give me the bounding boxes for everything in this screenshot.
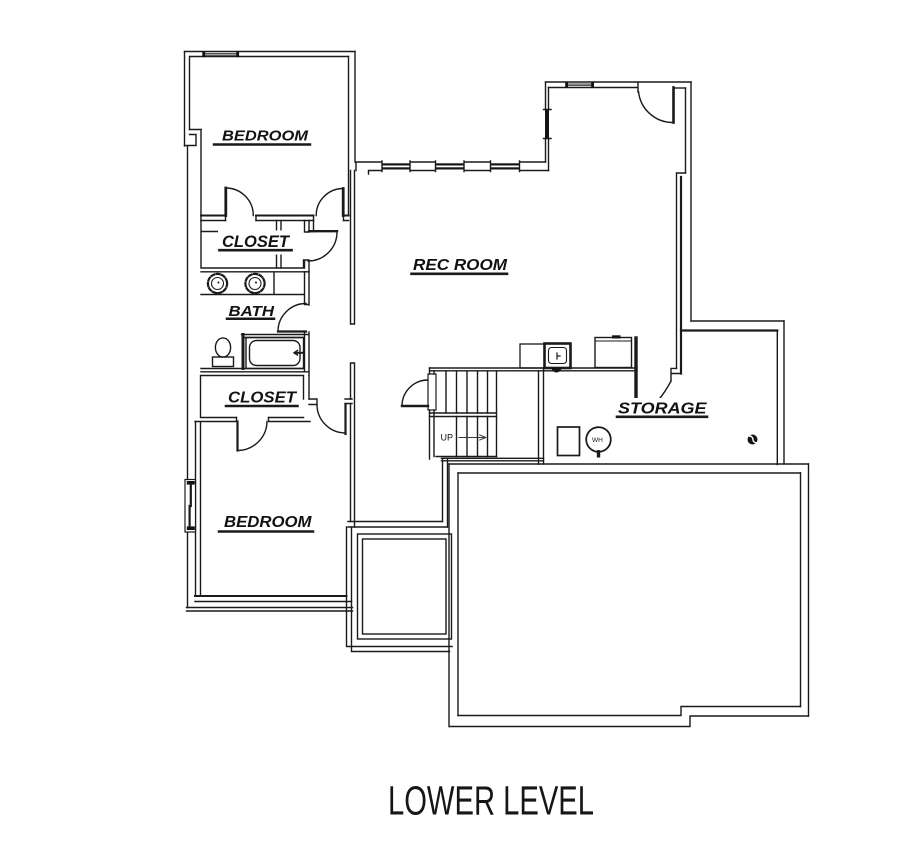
svg-text:BEDROOM: BEDROOM xyxy=(222,128,309,145)
svg-text:WH: WH xyxy=(592,437,603,444)
svg-text:BATH: BATH xyxy=(229,303,276,320)
svg-text:CLOSET: CLOSET xyxy=(222,232,291,251)
svg-text:REC ROOM: REC ROOM xyxy=(413,257,508,274)
svg-text:BEDROOM: BEDROOM xyxy=(224,514,313,531)
svg-text:UP: UP xyxy=(441,433,454,443)
svg-text:CLOSET: CLOSET xyxy=(228,390,297,407)
svg-text:STORAGE: STORAGE xyxy=(618,401,708,418)
svg-text:LOWER LEVEL: LOWER LEVEL xyxy=(388,778,594,824)
